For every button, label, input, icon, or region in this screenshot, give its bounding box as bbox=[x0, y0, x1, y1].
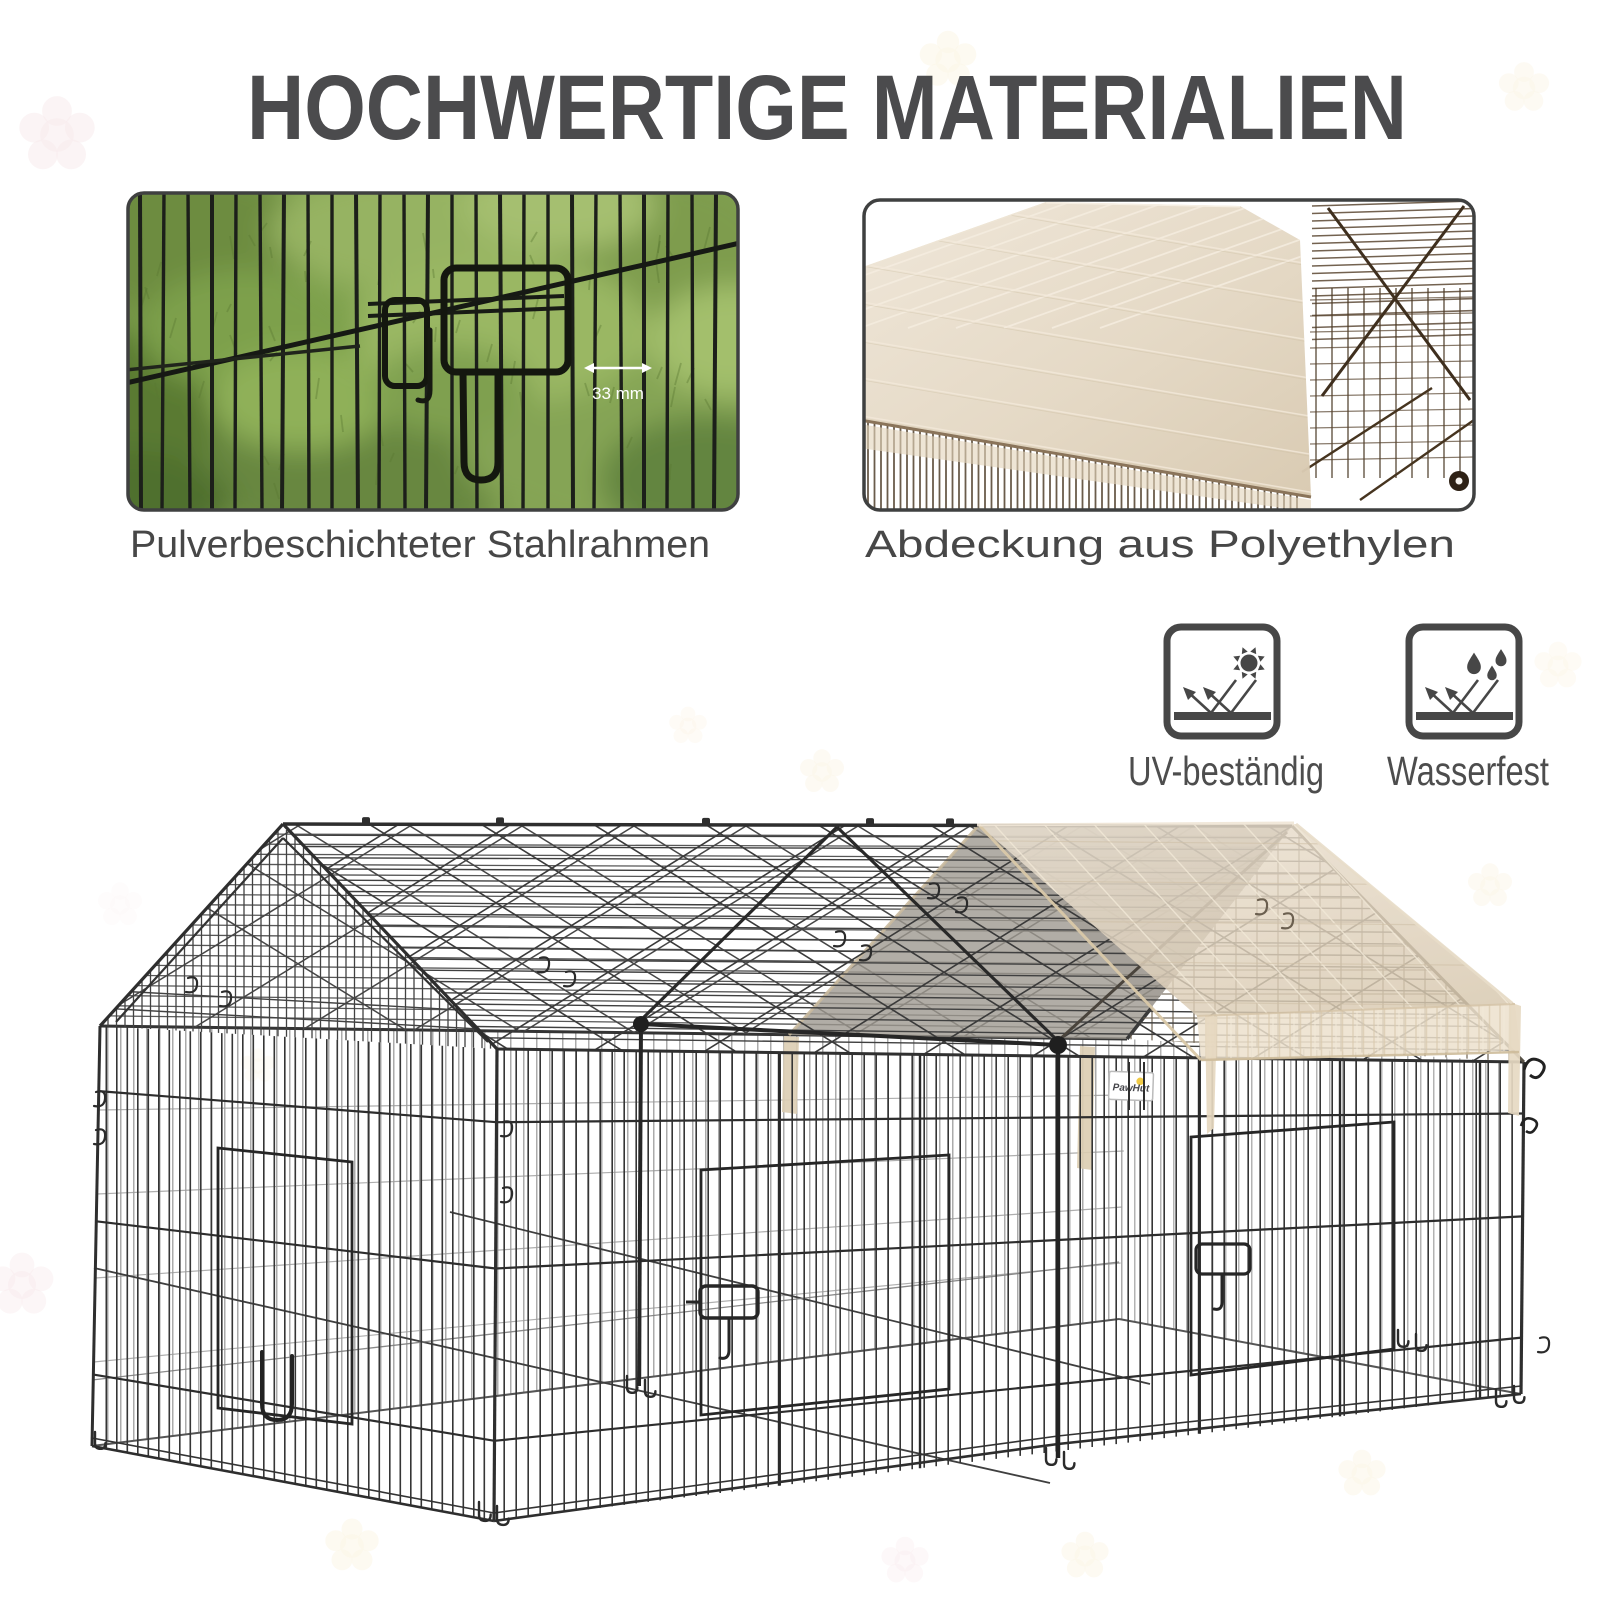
svg-text:Abdeckung aus Polyethylen: Abdeckung aus Polyethylen bbox=[865, 524, 1455, 566]
svg-text:UV-beständig: UV-beständig bbox=[1128, 748, 1324, 794]
svg-text:Wasserfest: Wasserfest bbox=[1387, 748, 1549, 794]
svg-text:Pulverbeschichteter Stahlrahme: Pulverbeschichteter Stahlrahmen bbox=[130, 524, 710, 566]
svg-text:HOCHWERTIGE MATERIALIEN: HOCHWERTIGE MATERIALIEN bbox=[247, 57, 1407, 159]
svg-text:33 mm: 33 mm bbox=[592, 384, 644, 403]
